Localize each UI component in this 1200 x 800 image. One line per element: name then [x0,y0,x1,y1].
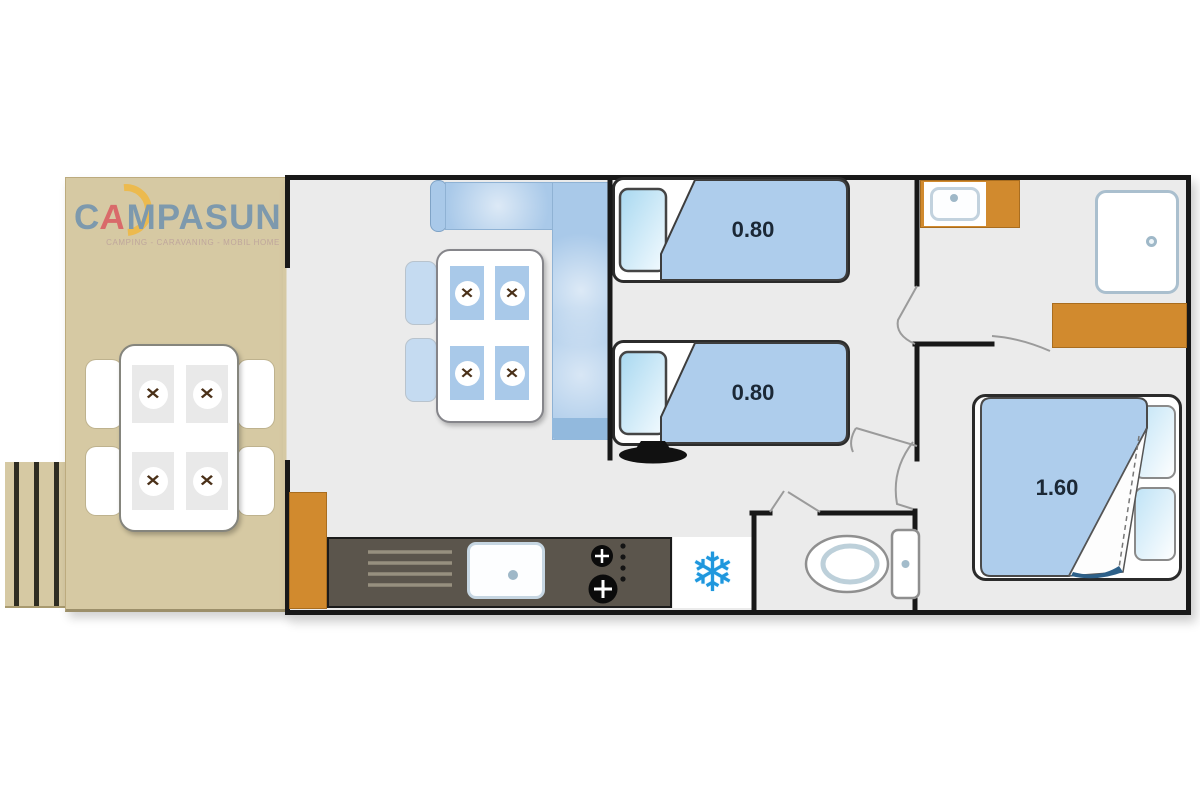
cutlery-icon: ✕ [460,286,474,300]
plate-icon: ✕ [455,361,480,386]
logo-tagline: CAMPING - CARAVANING - MOBIL HOME [74,238,280,247]
terrace-chair [238,360,274,428]
plate-icon: ✕ [193,467,222,496]
bed-size-label: 1.60 [1036,475,1079,500]
sofa [552,182,610,440]
cutlery-icon: ✕ [505,286,519,300]
brand-logo: C A MPASUN CAMPING - CARAVANING - MOBIL … [74,200,280,270]
place-setting: ✕ [132,365,174,423]
dining-chair [406,339,436,401]
single-bed-1: 0.80 [611,176,851,284]
cutlery-icon: ✕ [505,366,519,380]
place-setting: ✕ [495,346,529,400]
cutlery-icon: ✕ [199,386,215,402]
kitchen-sink [467,542,545,599]
place-setting: ✕ [495,266,529,320]
cutlery-icon: ✕ [145,473,161,489]
sink-drain-icon [508,570,518,580]
plate-icon: ✕ [500,281,525,306]
dining-chair [406,262,436,324]
faucet-icon [950,194,958,202]
terrace-steps [5,462,67,608]
cutlery-icon: ✕ [145,386,161,402]
floorplan-canvas: C A MPASUN CAMPING - CARAVANING - MOBIL … [0,0,1200,800]
place-setting: ✕ [186,365,228,423]
tent-a-icon: A [99,200,128,235]
logo-text: C A MPASUN [74,200,280,235]
kitchen-cabinet [289,492,327,609]
plate-icon: ✕ [139,467,168,496]
single-bed-2: 0.80 [611,339,851,447]
place-setting: ✕ [186,452,228,510]
terrace-chair [86,447,122,515]
double-bed: 1.60 [971,392,1185,584]
pillow-icon [620,352,666,434]
terrace-chair [86,360,122,428]
place-setting: ✕ [450,346,484,400]
cutlery-icon: ✕ [199,473,215,489]
cutlery-icon: ✕ [460,366,474,380]
terrace-chair [238,447,274,515]
plate-icon: ✕ [193,380,222,409]
logo-rest: MPASUN [127,200,282,235]
bed-size-label: 0.80 [732,217,775,242]
pillow-icon [620,189,666,271]
pillow-icon [1135,488,1175,560]
bed-size-label: 0.80 [732,380,775,405]
place-setting: ✕ [450,266,484,320]
logo-letter-c: C [74,200,100,235]
shower-drain-icon [1146,236,1157,247]
bathroom-sink [930,187,980,221]
plate-icon: ✕ [500,361,525,386]
entrance-opening [283,268,293,460]
sofa-end-cushion [552,418,610,440]
place-setting: ✕ [132,452,174,510]
plate-icon: ✕ [455,281,480,306]
shower-tray [1095,190,1179,294]
plate-icon: ✕ [139,380,168,409]
snowflake-icon: ❄ [690,546,735,600]
wardrobe [1052,303,1187,348]
fridge: ❄ [673,537,752,608]
